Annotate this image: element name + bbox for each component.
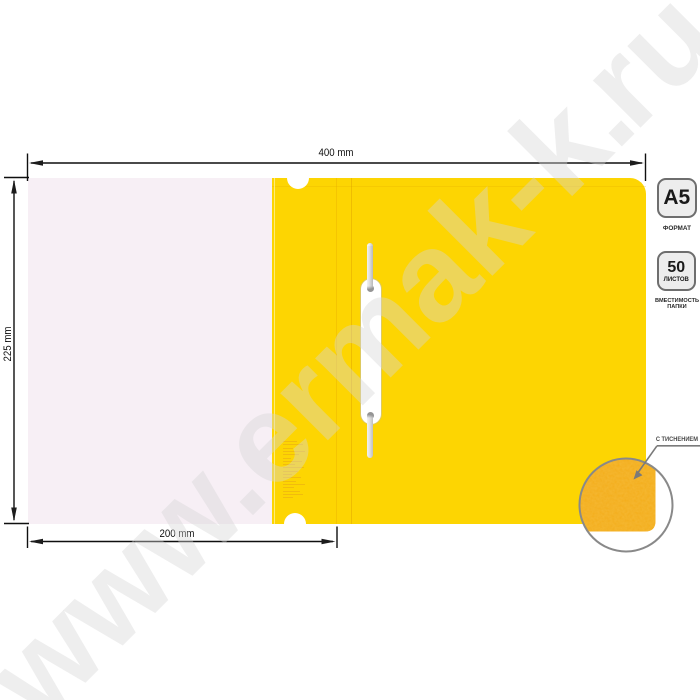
svg-text:www.ermak-k.ru: www.ermak-k.ru <box>0 0 700 700</box>
